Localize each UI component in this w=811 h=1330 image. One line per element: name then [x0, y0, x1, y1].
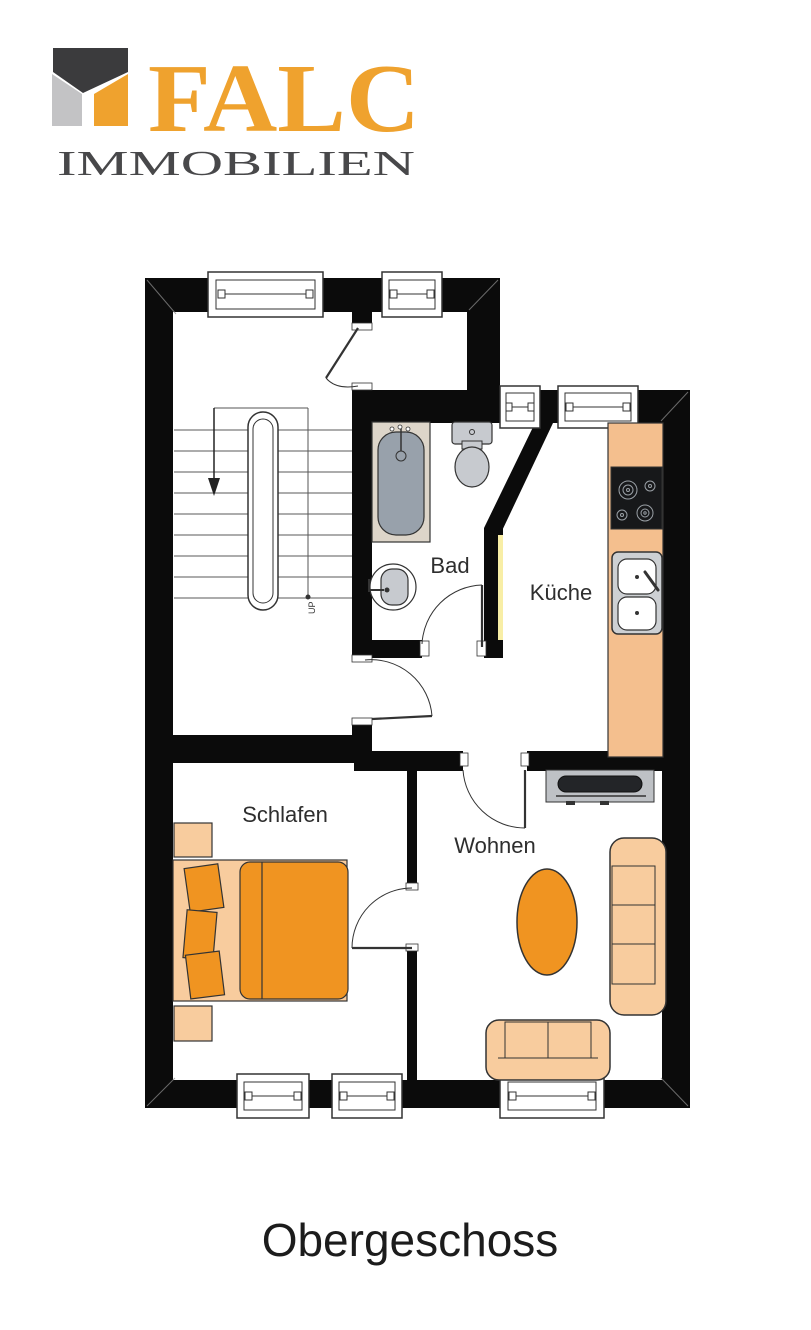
- stair-direction-arrow: [208, 408, 220, 496]
- floorplan-page: FALC IMMOBILIEN: [0, 0, 811, 1330]
- room-label-bad: Bad: [430, 553, 469, 578]
- nightstand-bottom: [174, 1006, 212, 1041]
- coffee-table: [517, 869, 577, 975]
- window-symbol: [332, 1074, 402, 1118]
- falc-logo: FALC IMMOBILIEN: [52, 45, 420, 183]
- sideboard-tv: [546, 770, 654, 805]
- window-symbol: [558, 386, 638, 428]
- sofa-small: [486, 1020, 610, 1080]
- falc-logo-mark: [52, 48, 128, 126]
- bed: [173, 860, 348, 1001]
- toilet: [452, 422, 492, 487]
- bath-sink: [369, 564, 416, 610]
- staircase: UP: [174, 408, 352, 614]
- window-symbol: [208, 272, 323, 317]
- nightstand-top: [174, 823, 212, 857]
- brand-subtitle: IMMOBILIEN: [57, 144, 415, 183]
- brand-name: FALC: [148, 45, 420, 153]
- room-label-kueche: Küche: [530, 580, 592, 605]
- door-bath: [420, 585, 486, 656]
- window-symbol: [500, 386, 540, 428]
- sofa-large: [610, 838, 666, 1015]
- window-symbol: [237, 1074, 309, 1118]
- window-symbol: [382, 272, 442, 317]
- stove: [611, 467, 662, 529]
- room-label-wohnen: Wohnen: [454, 833, 536, 858]
- floor-plan-svg: FALC IMMOBILIEN: [0, 0, 811, 1330]
- wall-highlight: [498, 535, 503, 640]
- bathtub: [372, 422, 430, 542]
- door-vestibule: [326, 323, 372, 390]
- room-label-schlafen: Schlafen: [242, 802, 328, 827]
- kitchen-sink: [612, 552, 662, 634]
- door-bedroom: [352, 883, 418, 951]
- stair-up-label: UP: [307, 601, 317, 614]
- floor-caption: Obergeschoss: [262, 1214, 559, 1266]
- door-entry: [352, 655, 432, 725]
- door-living: [460, 753, 529, 828]
